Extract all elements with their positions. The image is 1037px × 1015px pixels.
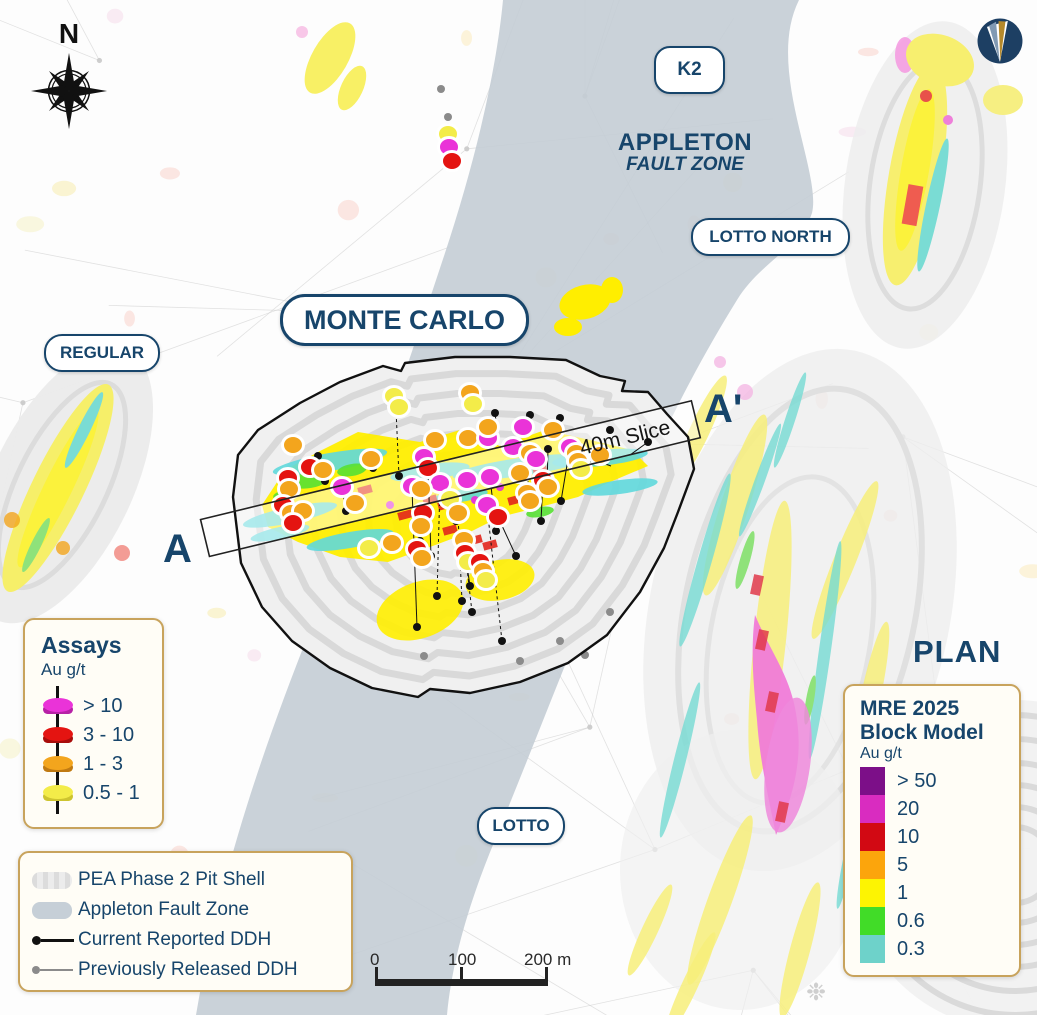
map-legend: PEA Phase 2 Pit Shell Appleton Fault Zon… xyxy=(18,851,353,992)
zone-pill-k2-label: K2 xyxy=(677,59,701,81)
grade-value-label: 1 xyxy=(897,882,908,905)
grade-value-label: 0.3 xyxy=(897,938,925,961)
grade-value-label: > 50 xyxy=(897,770,936,793)
mre-block-model-legend: MRE 2025 Block Model Au g/t > 50 20 10 5… xyxy=(843,684,1021,977)
map-legend-item-fault-zone: Appleton Fault Zone xyxy=(32,895,341,925)
grade-color-chip xyxy=(860,907,885,935)
assays-legend-subtitle: Au g/t xyxy=(41,660,152,680)
grade-color-chip xyxy=(860,823,885,851)
previous-ddh-swatch-icon xyxy=(32,966,78,974)
appleton-fault-zone-label: APPLETON FAULT ZONE xyxy=(600,130,770,175)
current-ddh-swatch-icon xyxy=(32,936,78,945)
appleton-label-line1: APPLETON xyxy=(600,130,770,155)
mre-legend-item: 10 xyxy=(860,823,1011,851)
assay-range-label: 3 - 10 xyxy=(83,724,134,747)
zone-pill-monte-carlo-label: MONTE CARLO xyxy=(304,305,505,336)
grade-color-chip xyxy=(860,935,885,963)
mre-legend-item: 0.6 xyxy=(860,907,1011,935)
compass-icon xyxy=(28,50,110,132)
mre-legend-item: 0.3 xyxy=(860,935,1011,963)
assay-disc-icon xyxy=(41,725,75,747)
assays-legend-item: 3 - 10 xyxy=(41,721,152,750)
plan-label: PLAN xyxy=(913,636,1001,669)
zone-pill-regular-label: REGULAR xyxy=(60,343,144,363)
plan-map: 40m Slice N K2 LOTTO NORTH MONTE CA xyxy=(0,0,1037,1015)
company-logo-icon xyxy=(977,18,1023,64)
zone-pill-monte-carlo: MONTE CARLO xyxy=(280,294,529,346)
mre-legend-rows: > 50 20 10 5 1 0.6 0.3 xyxy=(860,767,1011,963)
snowflake-icon: ❉ xyxy=(806,978,826,1007)
map-legend-label: PEA Phase 2 Pit Shell xyxy=(78,869,265,891)
mre-legend-title-line1: MRE 2025 xyxy=(860,697,1011,721)
zone-pill-lotto-north-label: LOTTO NORTH xyxy=(709,227,831,247)
zone-pill-regular: REGULAR xyxy=(44,334,160,372)
assays-legend-item: 1 - 3 xyxy=(41,750,152,779)
grade-value-label: 10 xyxy=(897,826,919,849)
zone-pill-lotto-north: LOTTO NORTH xyxy=(691,218,850,256)
grade-color-chip xyxy=(860,851,885,879)
section-a-label: A xyxy=(163,528,192,570)
mre-legend-item: 1 xyxy=(860,879,1011,907)
north-label: N xyxy=(26,20,112,48)
assays-legend-item: > 10 xyxy=(41,692,152,721)
assays-legend-title: Assays xyxy=(41,632,152,659)
assays-legend-rows: > 10 3 - 10 1 - 3 0.5 - 1 xyxy=(41,692,152,808)
assay-disc-icon xyxy=(41,783,75,805)
appleton-label-line2: FAULT ZONE xyxy=(600,155,770,175)
map-legend-label: Previously Released DDH xyxy=(78,959,298,981)
mre-legend-item: 5 xyxy=(860,851,1011,879)
zone-pill-k2: K2 xyxy=(654,46,725,94)
zone-pill-lotto: LOTTO xyxy=(477,807,565,845)
assay-range-label: > 10 xyxy=(83,695,122,718)
assays-legend: Assays Au g/t > 10 3 - 10 1 - 3 xyxy=(23,618,164,829)
mre-legend-item: 20 xyxy=(860,795,1011,823)
mre-legend-title-line2: Block Model xyxy=(860,721,1011,745)
assay-range-label: 0.5 - 1 xyxy=(83,782,140,805)
grade-value-label: 0.6 xyxy=(897,910,925,933)
grade-color-chip xyxy=(860,879,885,907)
map-legend-label: Current Reported DDH xyxy=(78,929,271,951)
assay-disc-icon xyxy=(41,696,75,718)
assays-legend-item: 0.5 - 1 xyxy=(41,779,152,808)
grade-value-label: 20 xyxy=(897,798,919,821)
scale-bar: 0 100 200 m xyxy=(368,950,578,996)
grade-color-chip xyxy=(860,767,885,795)
fault-zone-swatch-icon xyxy=(32,902,78,919)
pit-shell-swatch-icon xyxy=(32,872,78,889)
map-legend-item-current-ddh: Current Reported DDH xyxy=(32,925,341,955)
grade-value-label: 5 xyxy=(897,854,908,877)
zone-pill-lotto-label: LOTTO xyxy=(492,816,549,836)
map-legend-item-pit-shell: PEA Phase 2 Pit Shell xyxy=(32,865,341,895)
grade-color-chip xyxy=(860,795,885,823)
assay-range-label: 1 - 3 xyxy=(83,753,123,776)
map-legend-label: Appleton Fault Zone xyxy=(78,899,249,921)
mre-legend-subtitle: Au g/t xyxy=(860,745,1011,763)
assay-disc-icon xyxy=(41,754,75,776)
compass-rose: N xyxy=(26,20,112,137)
section-a-prime-label: A' xyxy=(704,388,742,430)
mre-legend-item: > 50 xyxy=(860,767,1011,795)
map-legend-item-previous-ddh: Previously Released DDH xyxy=(32,955,341,985)
